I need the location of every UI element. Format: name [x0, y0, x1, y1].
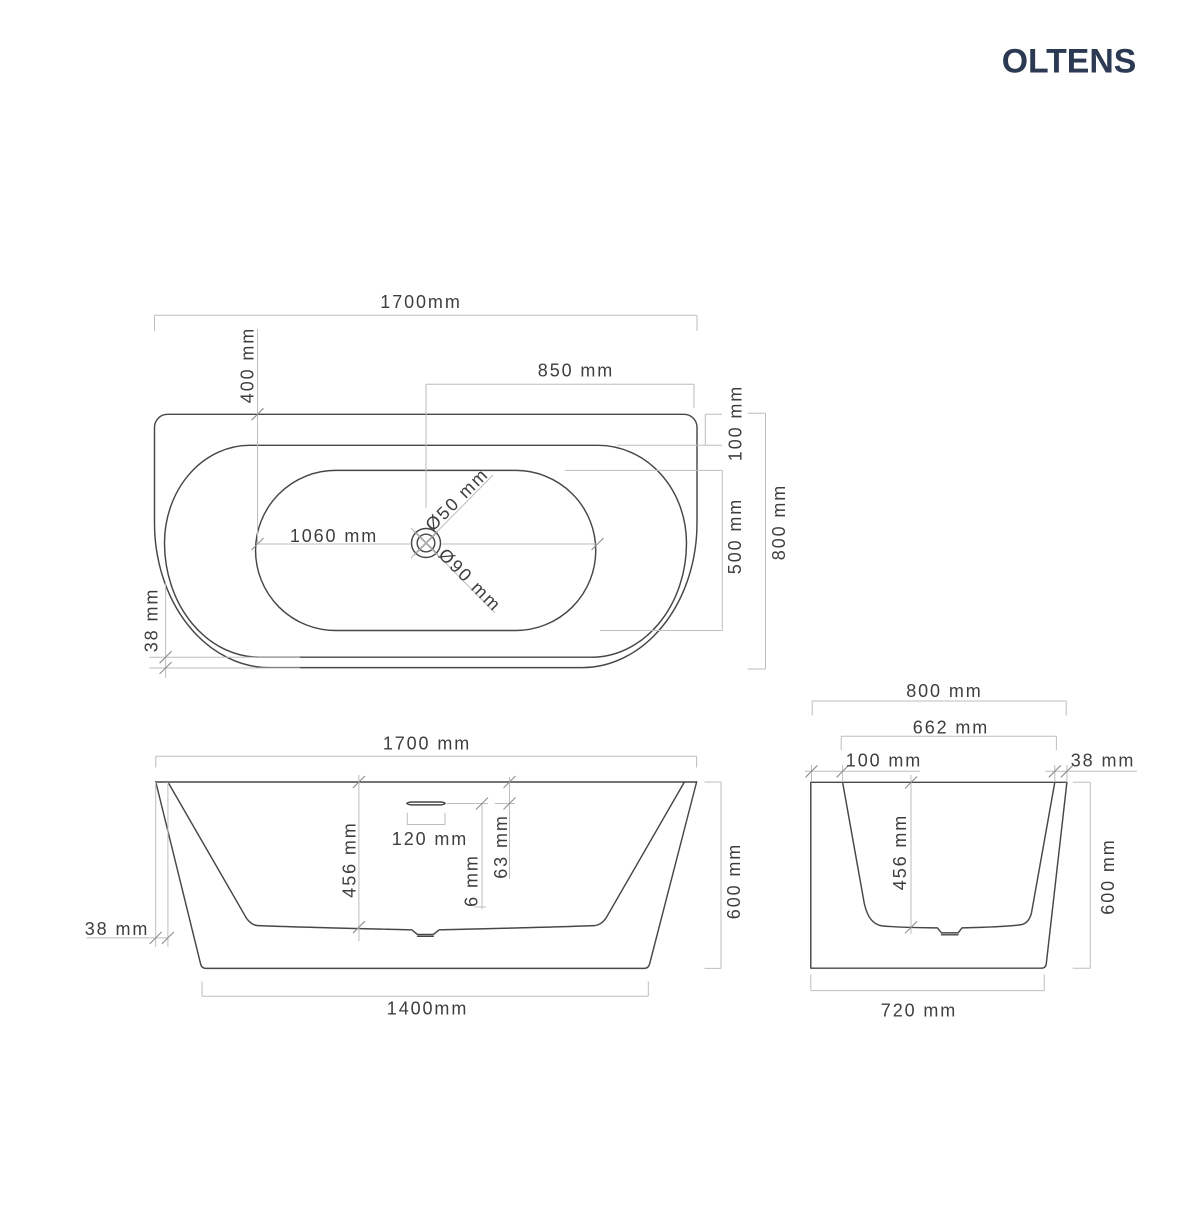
svg-text:100 mm: 100 mm [846, 751, 922, 771]
svg-text:800 mm: 800 mm [769, 484, 789, 560]
svg-text:662 mm: 662 mm [913, 718, 989, 738]
svg-text:63 mm: 63 mm [491, 814, 511, 879]
svg-text:38 mm: 38 mm [1071, 751, 1136, 771]
svg-text:1700mm: 1700mm [380, 292, 461, 312]
svg-text:400 mm: 400 mm [238, 327, 258, 403]
svg-text:800 mm: 800 mm [906, 681, 982, 701]
svg-text:38 mm: 38 mm [142, 588, 162, 653]
svg-text:456 mm: 456 mm [890, 814, 910, 890]
svg-text:1700 mm: 1700 mm [383, 734, 471, 754]
svg-text:500 mm: 500 mm [725, 498, 745, 574]
svg-text:850 mm: 850 mm [538, 361, 614, 381]
svg-text:OLTENS: OLTENS [1002, 43, 1137, 81]
svg-text:1060 mm: 1060 mm [290, 526, 378, 546]
svg-text:38 mm: 38 mm [85, 919, 150, 939]
svg-text:720 mm: 720 mm [881, 1001, 957, 1021]
svg-text:600 mm: 600 mm [724, 843, 744, 919]
svg-text:6 mm: 6 mm [462, 854, 482, 907]
svg-text:456 mm: 456 mm [340, 821, 360, 897]
svg-text:120 mm: 120 mm [392, 829, 468, 849]
svg-text:100 mm: 100 mm [726, 385, 746, 461]
svg-text:1400mm: 1400mm [387, 999, 468, 1019]
svg-text:600 mm: 600 mm [1098, 838, 1118, 914]
